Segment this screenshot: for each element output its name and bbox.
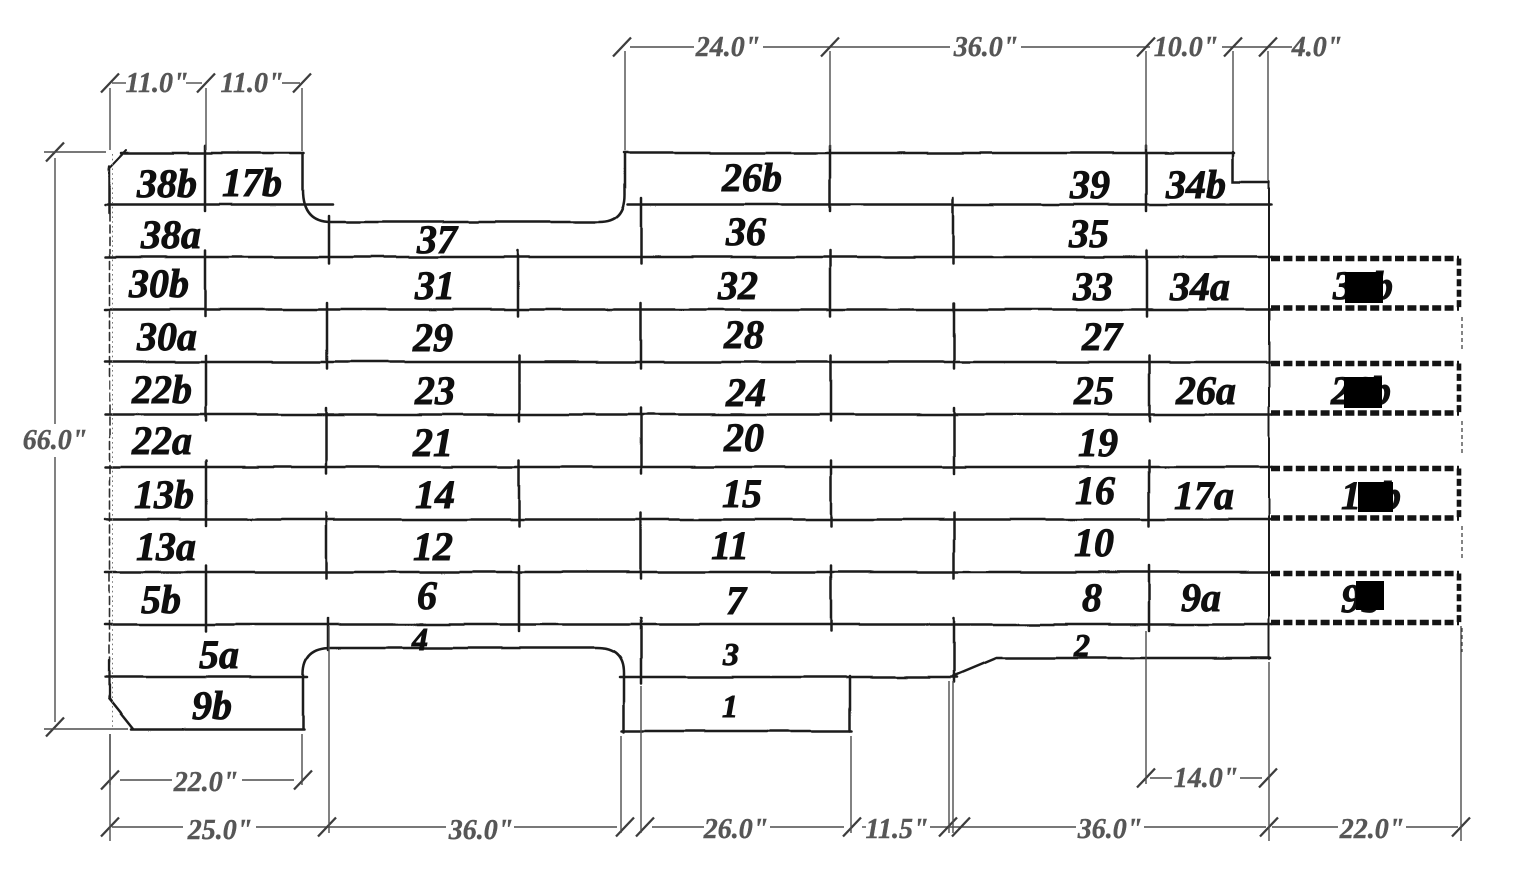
svg-text:20: 20 [723,415,764,460]
svg-text:32: 32 [717,263,758,308]
svg-text:1: 1 [722,688,738,724]
svg-text:13b: 13b [134,472,194,517]
svg-text:38b: 38b [136,161,197,206]
svg-text:23: 23 [414,368,455,413]
svg-text:4: 4 [411,621,428,657]
svg-text:22.0": 22.0" [173,767,239,798]
svg-text:34a: 34a [1169,264,1230,309]
svg-text:27: 27 [1081,314,1124,359]
svg-text:11.0": 11.0" [221,68,284,99]
svg-text:36.0": 36.0" [953,32,1019,63]
svg-text:66.0": 66.0" [23,425,88,456]
svg-text:19: 19 [1078,420,1118,465]
svg-text:17a: 17a [1174,473,1234,518]
svg-text:30a: 30a [136,314,197,359]
svg-text:9b: 9b [192,683,232,728]
svg-text:12: 12 [413,524,453,569]
svg-text:11.5": 11.5" [866,814,929,845]
svg-text:22.0": 22.0" [1339,814,1405,845]
svg-text:17b: 17b [222,160,282,205]
svg-text:14.0": 14.0" [1174,763,1239,794]
svg-text:24: 24 [725,370,766,415]
svg-text:31: 31 [414,263,455,308]
svg-text:37: 37 [416,217,459,262]
svg-text:28: 28 [723,312,764,357]
svg-text:14: 14 [415,472,455,517]
svg-text:22b: 22b [131,367,192,412]
svg-text:26.0": 26.0" [703,814,769,845]
svg-text:29: 29 [412,315,453,360]
svg-text:7: 7 [726,578,748,623]
svg-text:24.0": 24.0" [695,32,761,63]
svg-text:11: 11 [711,523,749,568]
svg-text:3: 3 [722,636,739,672]
svg-text:21: 21 [412,420,453,465]
svg-text:4.0": 4.0" [1291,32,1343,63]
svg-text:5b: 5b [141,577,181,622]
svg-text:2: 2 [1073,627,1090,663]
svg-text:38a: 38a [140,212,201,257]
svg-text:11.0": 11.0" [126,68,189,99]
svg-text:26a: 26a [1175,368,1236,413]
svg-text:26b: 26b [721,155,782,200]
svg-text:5a: 5a [199,632,239,677]
svg-text:6: 6 [417,573,437,618]
svg-text:36.0": 36.0" [448,815,514,846]
svg-text:36: 36 [725,209,766,254]
svg-text:39: 39 [1069,162,1110,207]
svg-text:34b: 34b [1165,162,1226,207]
svg-text:9a: 9a [1181,575,1221,620]
svg-text:16: 16 [1075,468,1115,513]
svg-text:10.0": 10.0" [1154,32,1219,63]
svg-text:8: 8 [1082,575,1102,620]
svg-text:35: 35 [1068,211,1109,256]
svg-text:33: 33 [1072,264,1113,309]
svg-text:13a: 13a [136,524,196,569]
svg-text:25.0": 25.0" [187,815,253,846]
svg-text:36.0": 36.0" [1077,814,1143,845]
svg-text:30b: 30b [128,261,189,306]
svg-text:15: 15 [722,471,762,516]
svg-text:10: 10 [1074,520,1114,565]
svg-text:22a: 22a [131,418,192,463]
svg-text:25: 25 [1073,368,1114,413]
